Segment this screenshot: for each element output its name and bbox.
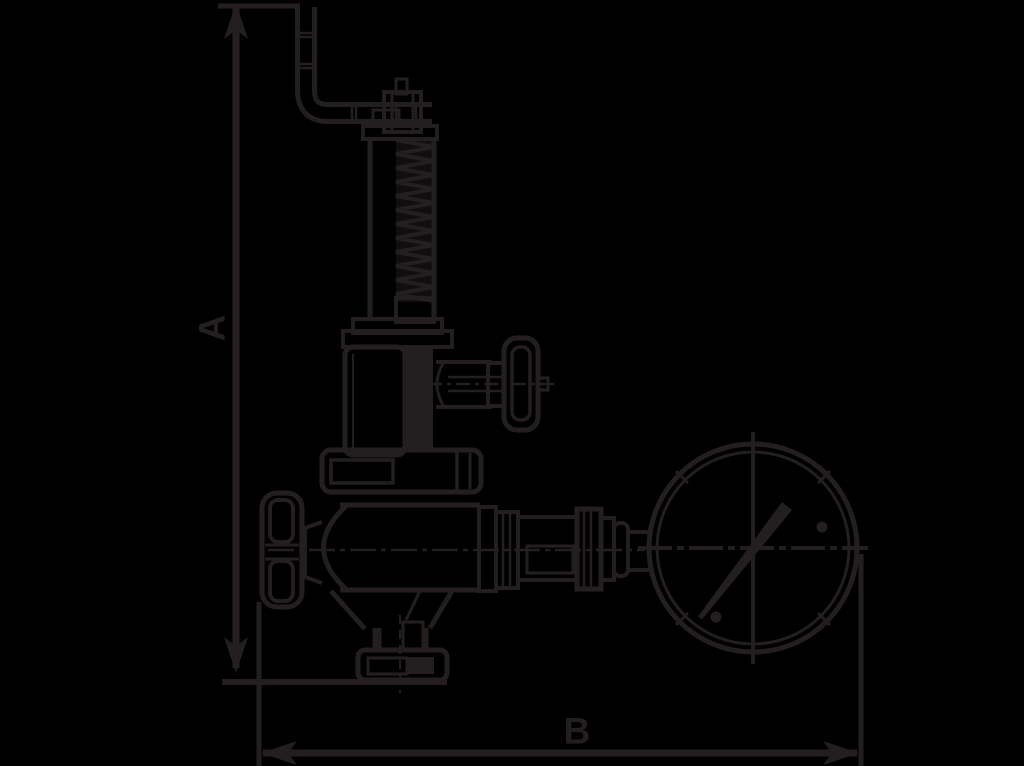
handwheel-window-bottom: [270, 561, 293, 601]
gauge-needle: [698, 502, 792, 620]
dimension-b-label: B: [564, 711, 591, 752]
funnel-left: [331, 591, 365, 629]
stem-column: [405, 347, 433, 452]
handwheel-window-top: [270, 500, 293, 542]
gauge-dial-dot-left: [711, 612, 722, 623]
dimension-a-label: A: [192, 315, 233, 342]
handwheel-stem: [305, 522, 322, 583]
gauge-dial-dot-right: [817, 522, 828, 533]
inlet-bore: [403, 622, 423, 649]
hex-face-left: [331, 460, 393, 483]
test-connection: [428, 338, 557, 430]
inlet-nut-face: [368, 658, 407, 674]
dimension-b: B: [259, 554, 861, 766]
valve-body: [268, 505, 645, 629]
upper-body: [345, 347, 433, 455]
valve-technical-drawing: A B: [0, 0, 1024, 766]
inlet-nut-shadow: [408, 657, 434, 674]
body-left-face: [324, 505, 348, 590]
pressure-gauge: [638, 432, 868, 664]
funnel-right: [430, 591, 452, 628]
spring-bonnet: [343, 139, 452, 347]
